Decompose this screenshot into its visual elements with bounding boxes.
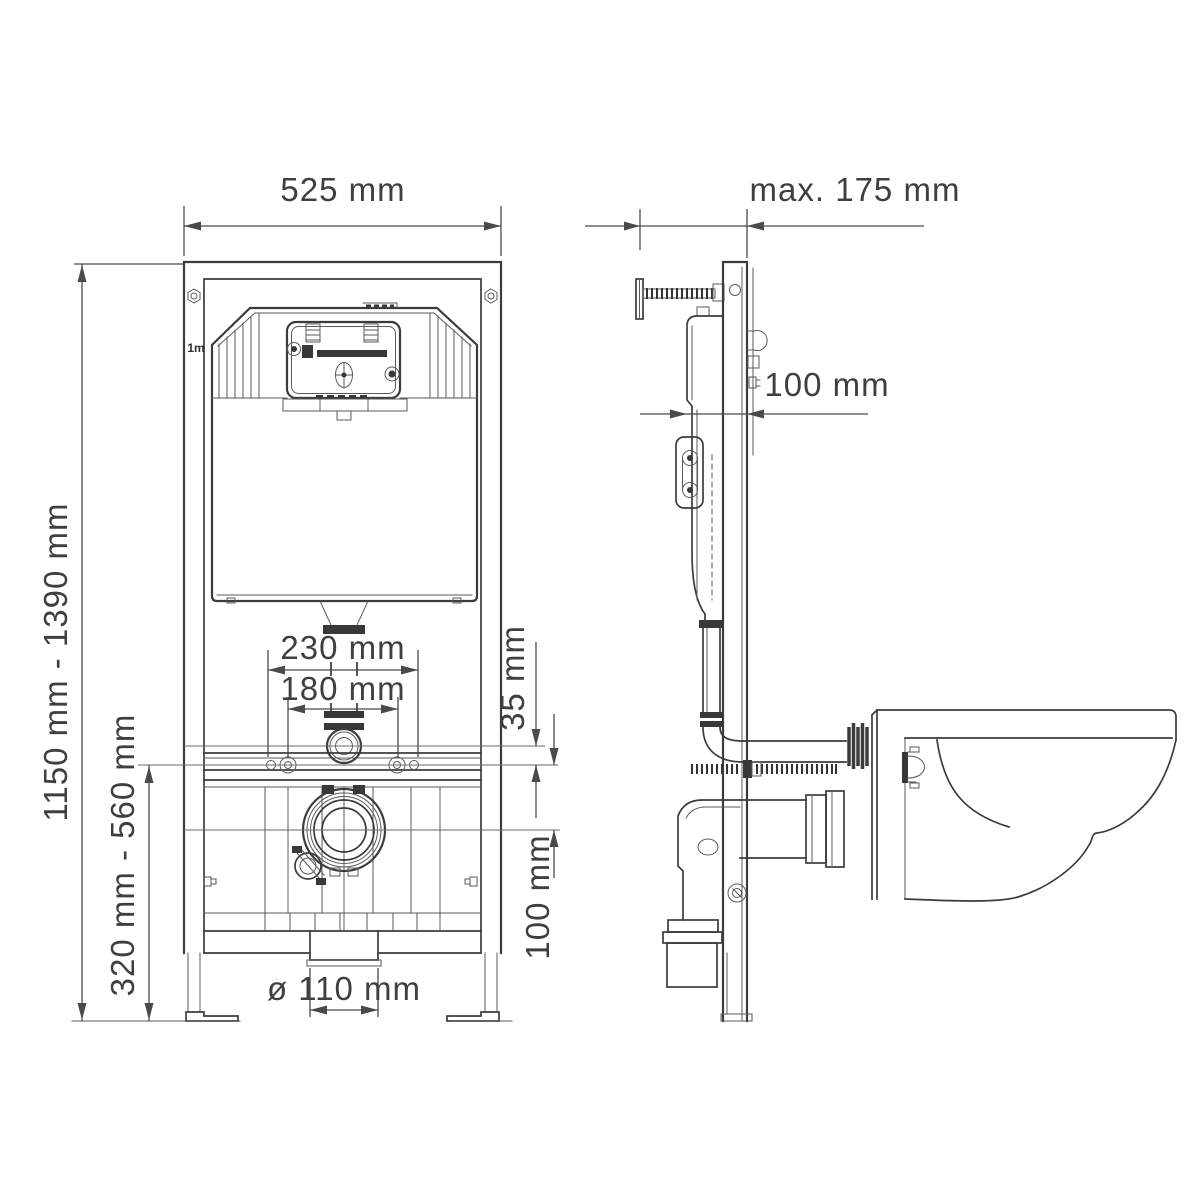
bolt-outer-label: 230 mm — [280, 629, 405, 666]
bowl-mounting-bracket — [902, 747, 925, 788]
toilet-bowl — [872, 710, 1176, 901]
flush-valve-rod — [317, 350, 387, 357]
pipe-clamp-bracket — [676, 437, 703, 508]
frame-rail — [721, 262, 767, 1021]
drain-socket — [292, 785, 385, 885]
under-panel-bracket — [283, 399, 407, 420]
drain-outlet-stub — [307, 931, 381, 966]
dim-drain-diameter: ø 110 mm — [267, 968, 421, 1017]
wall-anchor — [636, 279, 724, 319]
access-panel — [287, 322, 400, 398]
cistern — [212, 303, 477, 603]
dim-frame-depth: 100 mm — [640, 366, 890, 419]
cistern-ribs-left — [212, 314, 287, 398]
technical-drawing-page: 1m — [0, 0, 1200, 1200]
side-screw-left — [204, 877, 216, 886]
outlet-offset-label: 100 mm — [519, 834, 556, 959]
hex-bolt-left — [188, 289, 200, 303]
corrugated-connector — [849, 723, 867, 769]
dim-outlet-height: 320 mm - 560 mm — [104, 714, 154, 1021]
wall-distance-label: max. 175 mm — [750, 171, 961, 208]
keyhole-detail — [336, 362, 353, 388]
left-foot — [186, 1012, 238, 1021]
dim-frame-width: 525 mm — [184, 171, 501, 256]
frame-width-label: 525 mm — [280, 171, 405, 208]
bolt-inner-label: 180 mm — [280, 670, 405, 707]
threaded-rod-top — [647, 288, 712, 299]
dim-outlet-offset: 100 mm — [519, 714, 559, 960]
side-screw-right — [465, 877, 477, 886]
cistern-ribs-right — [400, 314, 477, 398]
meter-mark-label: 1m — [187, 341, 204, 355]
drain-diameter-label: ø 110 mm — [267, 970, 421, 1007]
elbow-screw — [728, 884, 746, 902]
cistern-side — [676, 307, 724, 628]
wc-frame-installation-drawing: 1m — [0, 0, 1200, 1200]
threaded-rod-bottom — [692, 764, 836, 774]
dimensions: 525 mm max. 175 mm 1150 mm - 1390 mm 320… — [37, 171, 960, 1021]
side-view — [636, 262, 1176, 1021]
mounting-rail — [204, 753, 481, 787]
flush-pipe-side — [692, 628, 867, 778]
drain-elbow — [663, 791, 844, 987]
flush-offset-label: 35 mm — [494, 625, 531, 731]
dim-wall-distance: max. 175 mm — [585, 171, 960, 258]
frame-height-label: 1150 mm - 1390 mm — [37, 503, 74, 822]
frame-depth-label: 100 mm — [764, 366, 889, 403]
hex-bolt-right — [485, 289, 497, 303]
outlet-height-label: 320 mm - 560 mm — [104, 714, 141, 997]
right-foot — [447, 1012, 499, 1021]
rail-hole — [730, 285, 741, 296]
